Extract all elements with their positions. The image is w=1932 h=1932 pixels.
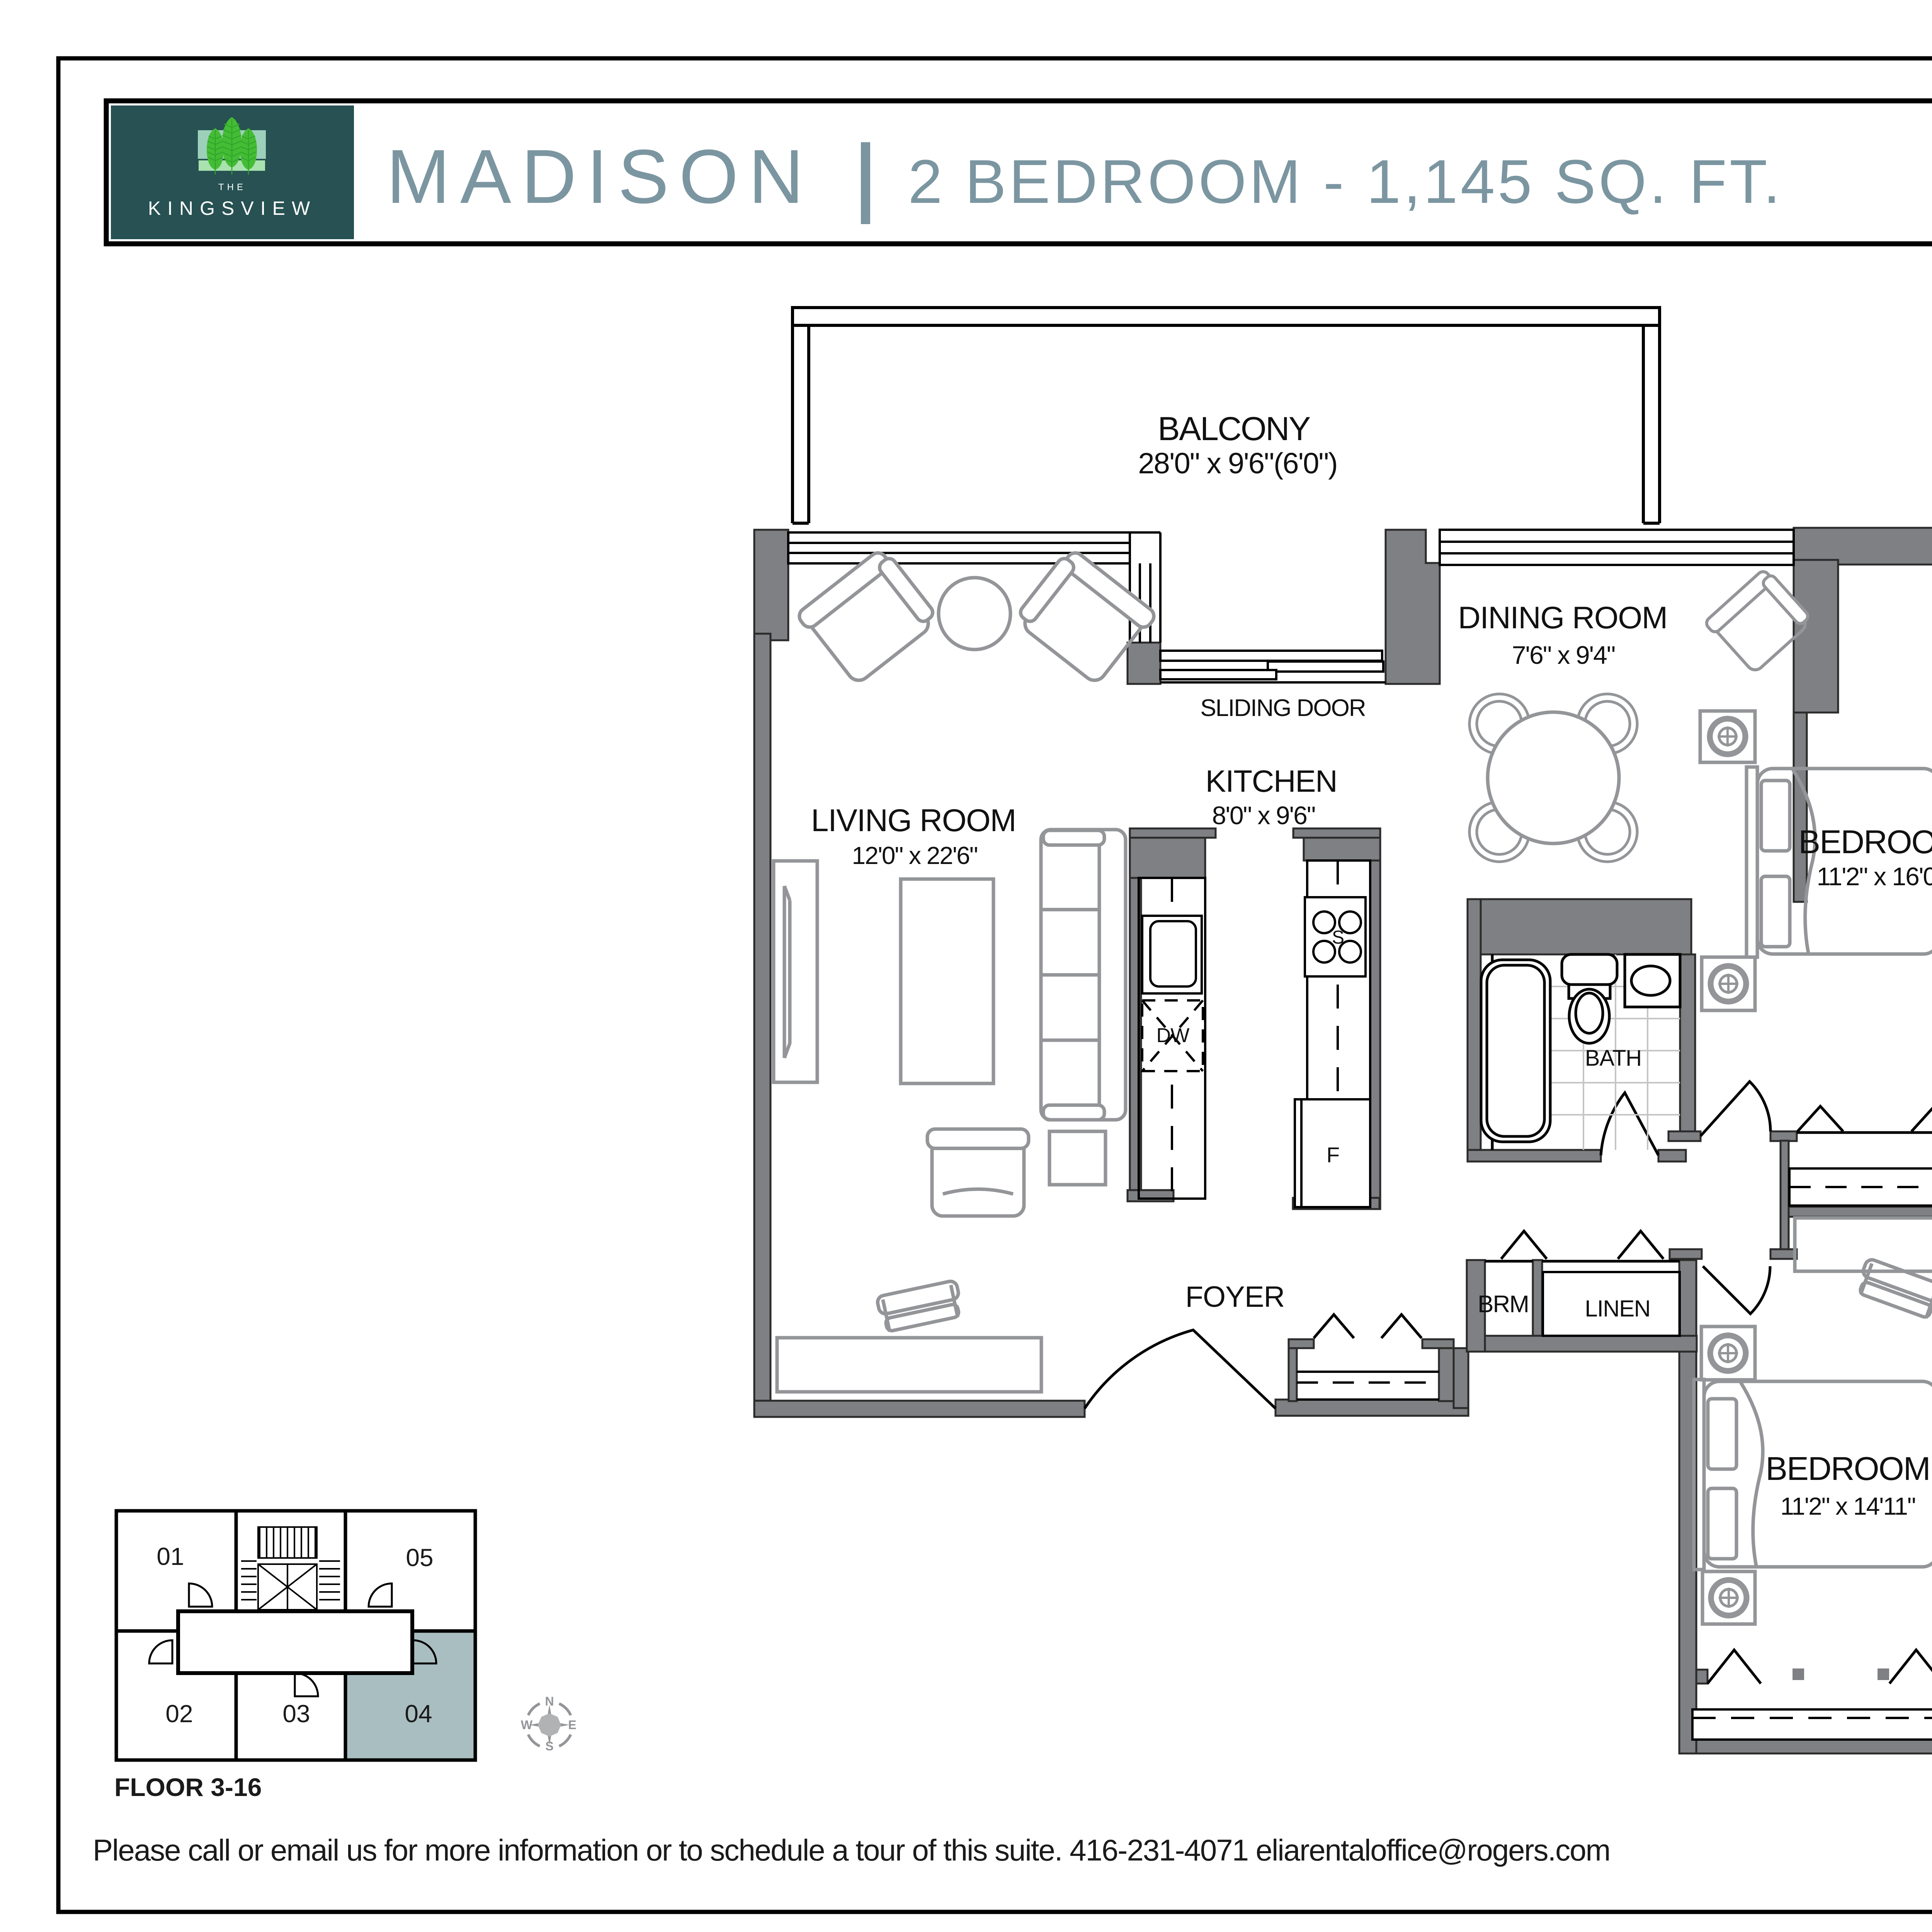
svg-text:05: 05 [406, 1544, 433, 1571]
svg-text:01: 01 [156, 1543, 184, 1570]
svg-text:THE: THE [218, 182, 246, 192]
svg-text:BATH: BATH [1585, 1046, 1641, 1071]
svg-text:11'2" x 14'11": 11'2" x 14'11" [1780, 1492, 1915, 1520]
svg-text:04: 04 [405, 1700, 432, 1728]
svg-text:03: 03 [282, 1700, 310, 1728]
svg-text:FOYER: FOYER [1185, 1281, 1285, 1313]
svg-text:MADISON: MADISON [386, 134, 814, 219]
svg-text:KINGSVIEW: KINGSVIEW [148, 197, 316, 219]
svg-text:KITCHEN: KITCHEN [1206, 764, 1337, 798]
svg-text:BALCONY: BALCONY [1158, 410, 1310, 447]
svg-text:F: F [1327, 1143, 1340, 1167]
svg-text:BEDROOM: BEDROOM [1798, 824, 1932, 861]
svg-text:LINEN: LINEN [1585, 1296, 1650, 1321]
svg-text:W: W [521, 1718, 533, 1732]
svg-text:S: S [545, 1739, 553, 1753]
svg-text:LIVING ROOM: LIVING ROOM [811, 803, 1016, 838]
svg-text:28'0" x 9'6"(6'0"): 28'0" x 9'6"(6'0") [1138, 447, 1337, 480]
svg-text:8'0" x 9'6": 8'0" x 9'6" [1212, 801, 1315, 830]
svg-text:12'0" x 22'6": 12'0" x 22'6" [852, 842, 978, 869]
svg-text:02: 02 [165, 1700, 193, 1728]
svg-text:FLOOR 3-16: FLOOR 3-16 [114, 1773, 262, 1801]
svg-text:N: N [545, 1694, 554, 1708]
svg-text:BEDROOM: BEDROOM [1765, 1451, 1930, 1487]
svg-text:2 BEDROOM - 1,145 SQ. FT.: 2 BEDROOM - 1,145 SQ. FT. [908, 147, 1783, 216]
svg-text:DW: DW [1156, 1024, 1190, 1047]
svg-text:11'2" x 16'0": 11'2" x 16'0" [1816, 862, 1932, 891]
svg-text:7'6" x 9'4": 7'6" x 9'4" [1512, 641, 1615, 669]
svg-text:BRM: BRM [1478, 1291, 1529, 1318]
svg-text:DINING ROOM: DINING ROOM [1458, 600, 1667, 635]
svg-text:SLIDING DOOR: SLIDING DOOR [1200, 695, 1365, 721]
svg-text:Please call or email us for mo: Please call or email us for more informa… [93, 1833, 1610, 1867]
svg-text:E: E [568, 1718, 576, 1732]
svg-text:S: S [1332, 927, 1344, 948]
